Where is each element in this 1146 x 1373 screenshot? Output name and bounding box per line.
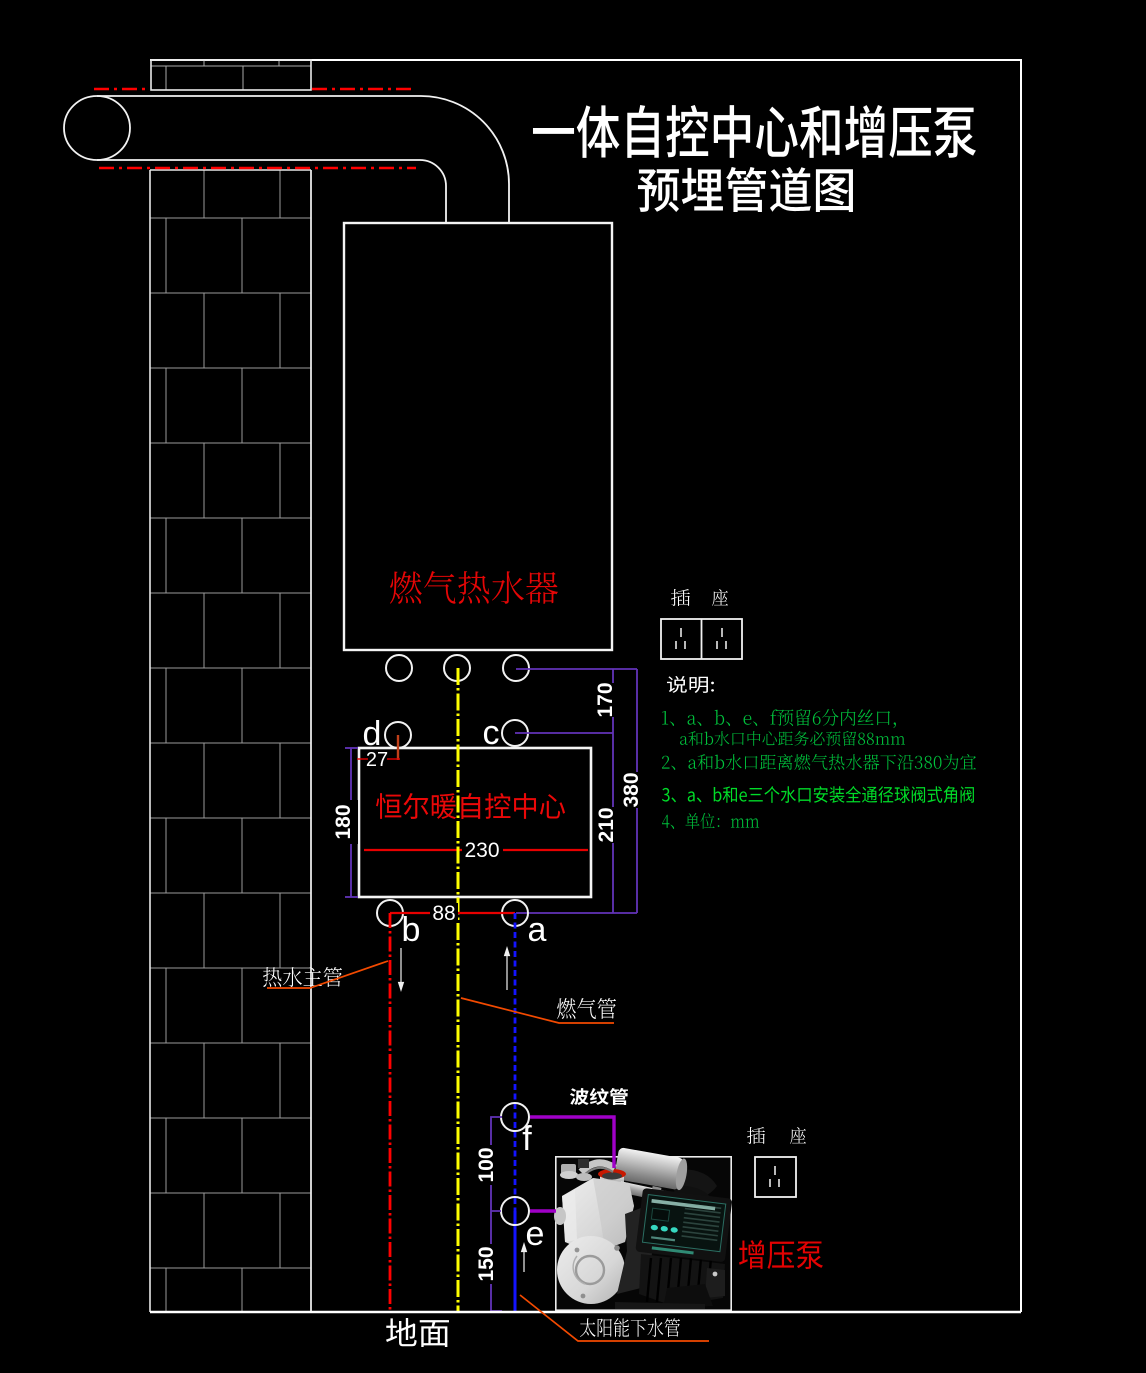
- svg-text:230: 230: [464, 839, 499, 862]
- svg-text:100: 100: [475, 1147, 498, 1182]
- svg-text:150: 150: [475, 1246, 498, 1281]
- svg-text:f: f: [522, 1120, 532, 1158]
- svg-text:a: a: [528, 911, 547, 949]
- svg-text:88: 88: [432, 902, 455, 925]
- svg-text:27: 27: [366, 749, 388, 771]
- svg-text:b: b: [402, 911, 421, 949]
- svg-text:380: 380: [620, 772, 643, 807]
- svg-text:c: c: [483, 714, 500, 752]
- svg-text:210: 210: [595, 807, 618, 842]
- svg-text:e: e: [526, 1215, 545, 1253]
- svg-text:170: 170: [594, 682, 617, 717]
- svg-text:180: 180: [332, 804, 355, 839]
